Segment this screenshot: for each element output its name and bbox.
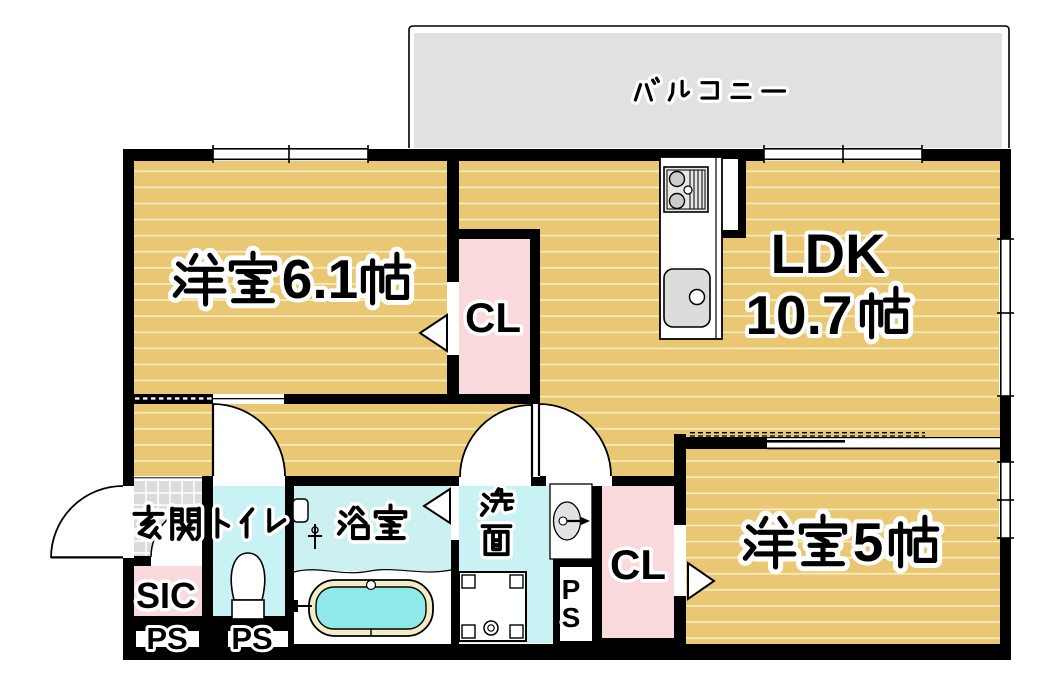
- svg-text:SIC: SIC: [136, 575, 196, 616]
- svg-text:10.7: 10.7: [745, 284, 852, 346]
- svg-text:CL: CL: [465, 294, 521, 341]
- svg-text:6.1: 6.1: [282, 248, 358, 310]
- svg-text:CL: CL: [610, 541, 666, 588]
- svg-text:PS: PS: [231, 621, 272, 656]
- svg-text:PS: PS: [146, 621, 187, 656]
- svg-text:LDK: LDK: [770, 222, 885, 285]
- svg-text:S: S: [562, 602, 581, 633]
- svg-text:5: 5: [853, 511, 884, 573]
- svg-text:P: P: [562, 574, 581, 605]
